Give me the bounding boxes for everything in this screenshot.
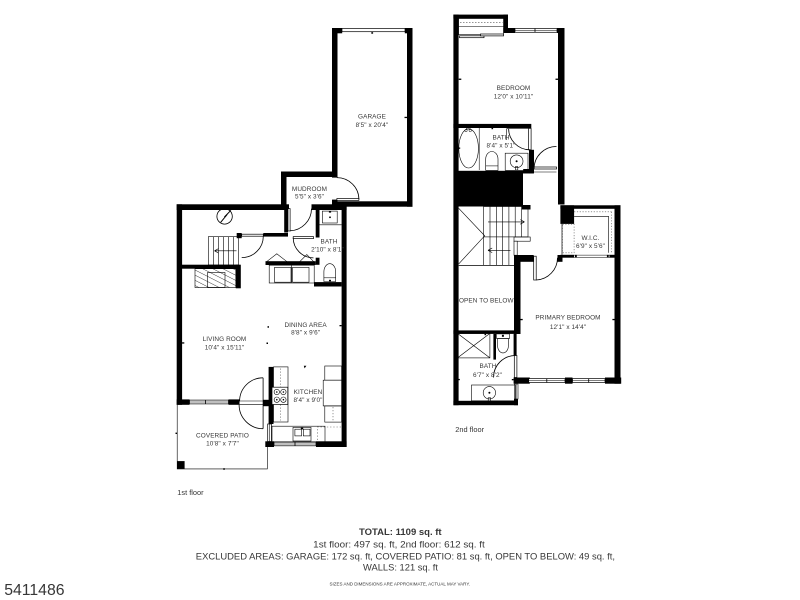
svg-text:8'8" x 9'6": 8'8" x 9'6" [291, 329, 320, 336]
svg-text:OPEN TO BELOW: OPEN TO BELOW [459, 297, 515, 304]
svg-text:PRIMARY BEDROOM: PRIMARY BEDROOM [535, 315, 600, 322]
svg-text:DINING AREA: DINING AREA [284, 322, 327, 329]
svg-text:TOTAL: 1109 sq. ft: TOTAL: 1109 sq. ft [359, 527, 442, 537]
svg-text:BATH: BATH [493, 135, 510, 142]
svg-text:12'0" x 10'11": 12'0" x 10'11" [494, 94, 534, 101]
svg-text:10'8" x 7'7": 10'8" x 7'7" [206, 440, 239, 447]
svg-text:5'5" x 3'6": 5'5" x 3'6" [295, 194, 324, 201]
svg-text:8'4" x 9'0": 8'4" x 9'0" [293, 397, 322, 404]
svg-text:6'7" x 8'2": 6'7" x 8'2" [473, 372, 502, 379]
svg-text:12'1" x 14'4": 12'1" x 14'4" [550, 324, 586, 331]
svg-text:5411486: 5411486 [4, 582, 65, 599]
svg-text:LIVING ROOM: LIVING ROOM [203, 336, 247, 343]
svg-text:2'10" x 8'1": 2'10" x 8'1" [311, 246, 344, 253]
svg-text:6'9" x 5'6": 6'9" x 5'6" [576, 243, 605, 250]
svg-text:BATH: BATH [321, 239, 338, 246]
svg-text:8'4" x 5'1": 8'4" x 5'1" [486, 143, 515, 150]
svg-text:1st floor: 497 sq. ft, 2nd flo: 1st floor: 497 sq. ft, 2nd floor: 612 sq… [313, 539, 485, 550]
svg-text:2nd floor: 2nd floor [455, 425, 484, 434]
svg-text:MUDROOM: MUDROOM [292, 186, 327, 193]
svg-text:10'4" x 15'11": 10'4" x 15'11" [205, 344, 245, 351]
svg-text:W.I.C.: W.I.C. [582, 235, 600, 242]
svg-text:WALLS: 121 sq. ft: WALLS: 121 sq. ft [363, 562, 438, 573]
svg-text:BEDROOM: BEDROOM [497, 85, 531, 92]
svg-text:BATH: BATH [480, 363, 497, 370]
svg-text:SIZES AND DIMENSIONS ARE APPRO: SIZES AND DIMENSIONS ARE APPROXIMATE, AC… [330, 582, 471, 587]
svg-text:COVERED PATIO: COVERED PATIO [196, 432, 249, 439]
svg-text:EXCLUDED AREAS: GARAGE: 172 sq: EXCLUDED AREAS: GARAGE: 172 sq. ft, COVE… [196, 552, 615, 563]
svg-text:GARAGE: GARAGE [358, 114, 386, 121]
svg-text:KITCHEN: KITCHEN [294, 389, 323, 396]
svg-text:1st floor: 1st floor [177, 488, 204, 497]
svg-text:8'5" x 20'4": 8'5" x 20'4" [356, 122, 389, 129]
